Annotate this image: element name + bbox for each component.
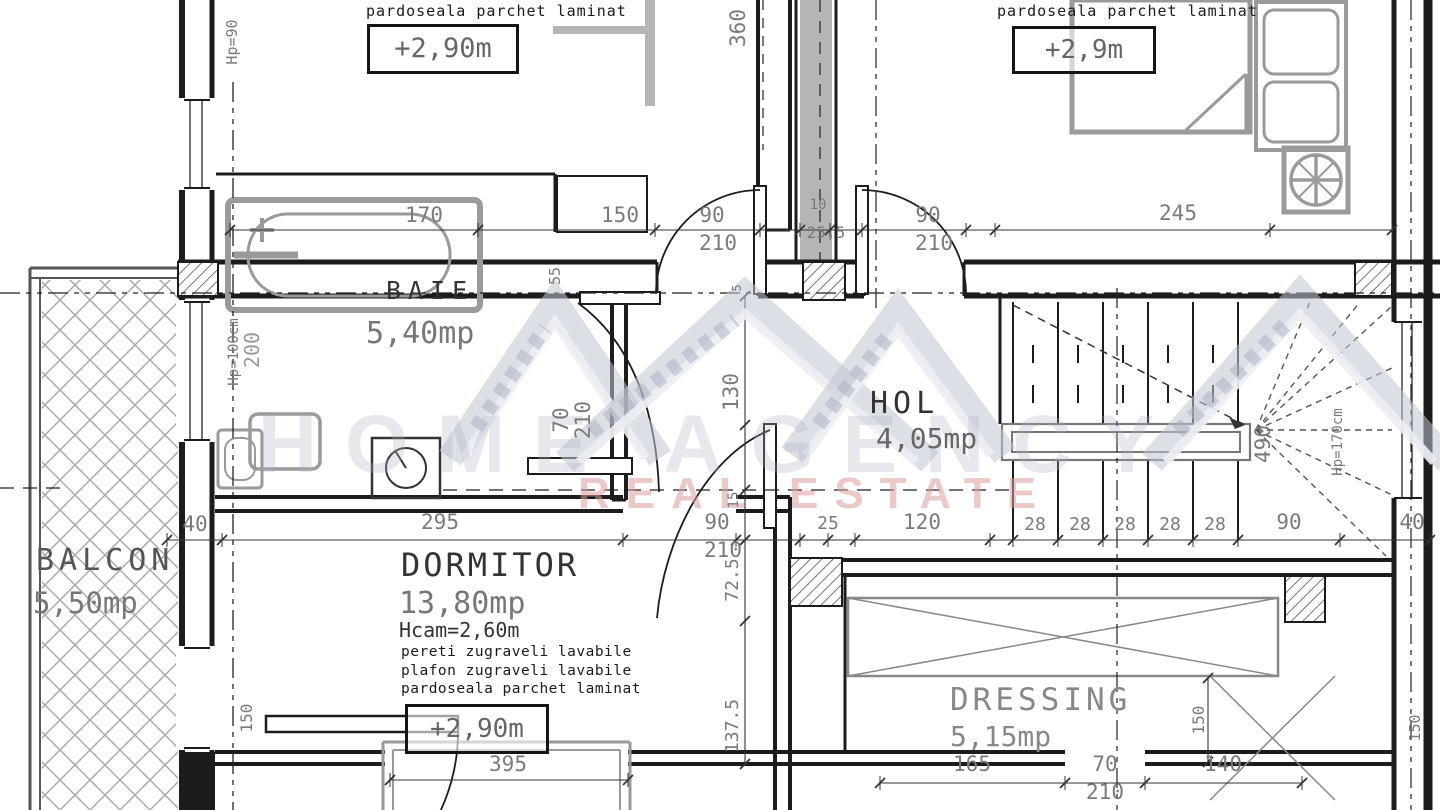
level-marker-dormitor: +2,90m [405,704,549,754]
dimension-label: 150 [1406,714,1424,741]
finish-note-top-right: pardoseala parchet laminat [997,2,1258,20]
dimension-label: 90 [704,510,729,534]
hatched-column [790,558,842,606]
dimension-label: 130 [719,373,743,411]
dimension-label: 120 [903,510,941,534]
dimension-label: 137.5 [722,699,743,753]
dimension-label: 28 [1114,514,1136,535]
dimension-label: 210 [699,231,737,255]
dimension-label: 70 [549,407,573,432]
room-height-dormitor: Hcam=2,60m [399,618,519,642]
dimension-label: 140 [1204,752,1242,776]
dimension-label: 150 [601,203,639,227]
dimension-label: 10 [810,197,827,213]
door-leaf [856,186,868,294]
dimension-label: 395 [489,752,527,776]
wall-opening [176,98,216,190]
dimension-label: 200 [240,332,264,368]
dimension-label: 28 [1204,514,1226,535]
room-label-hol: HOL [870,386,939,421]
dimension-label: 28 [1024,514,1046,535]
dimension-label: Hp=170cm [1330,408,1346,475]
finish-note-line: pardoseala parchet laminat [401,680,641,699]
door-leaf [754,186,766,294]
dimension-label: 40 [182,512,207,536]
door-leaf [580,292,660,304]
dimension-label: 360 [726,9,750,47]
bed-fold [1186,74,1246,130]
cabinet [1256,2,1346,150]
dimension-label: 490 [1251,425,1275,463]
stair-winder-line [1256,430,1386,556]
dimension-label: 25 [817,513,839,534]
dimension-label: 70 [1092,752,1117,776]
dimension-label: 170 [405,203,443,227]
dimension-label: 55 [546,267,564,285]
level-marker-top-right: +2,9m [1012,26,1156,74]
dimension-label: 15 [726,492,742,509]
room-label-balcon: BALCON [36,543,174,578]
wall-opening [864,258,964,300]
dimension-label: 150 [237,704,256,733]
room-area-hol: 4,05mp [876,422,977,455]
dimension-label: 28 [1159,514,1181,535]
room-label-dormitor: DORMITOR [401,546,579,584]
room-area-dormitor: 13,80mp [399,586,525,621]
dimension-label: 72.5 [722,558,743,601]
room-label-dressing: DRESSING [950,682,1131,718]
dimension-label: 5 [730,284,744,291]
dimension-label: Hp=90 [223,19,241,64]
dimension-label: 28 [1069,514,1091,535]
watermark-tagline-text: REAL ESTATE [578,469,1052,518]
dimension-label: 210 [1086,780,1124,804]
dimension-label: 25,5 [807,223,846,242]
dimension-label: 245 [1159,201,1197,225]
dimension-label: 40 [1399,510,1424,534]
wall-opening [176,646,216,750]
stair-winder-line [1256,430,1392,495]
hatched-column [1355,262,1392,296]
hatched-column [1285,576,1325,622]
cabinet-door [1264,10,1338,74]
wall-opening [176,300,216,442]
finish-note-line: plafon zugraveli lavabile [401,662,641,681]
dimension-label: 295 [421,510,459,534]
dimension-label: 90 [915,203,940,227]
dimension-label: 210 [915,231,953,255]
dimension-label: 150 [1189,706,1208,735]
level-marker-top-left: +2,90m [367,24,519,74]
cabinet-door [1264,82,1338,142]
room-area-baie: 5,40mp [366,316,474,351]
finish-note-top-left: pardoseala parchet laminat [366,2,627,20]
dimension-label: 165 [953,752,991,776]
floor-plan-drawing: HOME AGENCY REAL ESTATE 170150902101025,… [0,0,1440,810]
dimension-label: 90 [699,203,724,227]
dimension-label: 90 [1276,510,1301,534]
wall-block [185,752,215,810]
floor-plan-page: HOME AGENCY REAL ESTATE 170150902101025,… [0,0,1440,810]
finish-note-line: pereti zugraveli lavabile [401,643,641,662]
room-area-dressing: 5,15mp [950,720,1051,753]
finish-notes-dormitor: pereti zugraveli lavabile plafon zugrave… [401,643,641,699]
hatched-column [803,262,845,300]
room-label-baie: BAIE [386,276,474,305]
dimension-label: 210 [571,401,595,439]
room-area-balcon: 5,50mp [33,586,138,620]
hatched-column [178,262,218,296]
